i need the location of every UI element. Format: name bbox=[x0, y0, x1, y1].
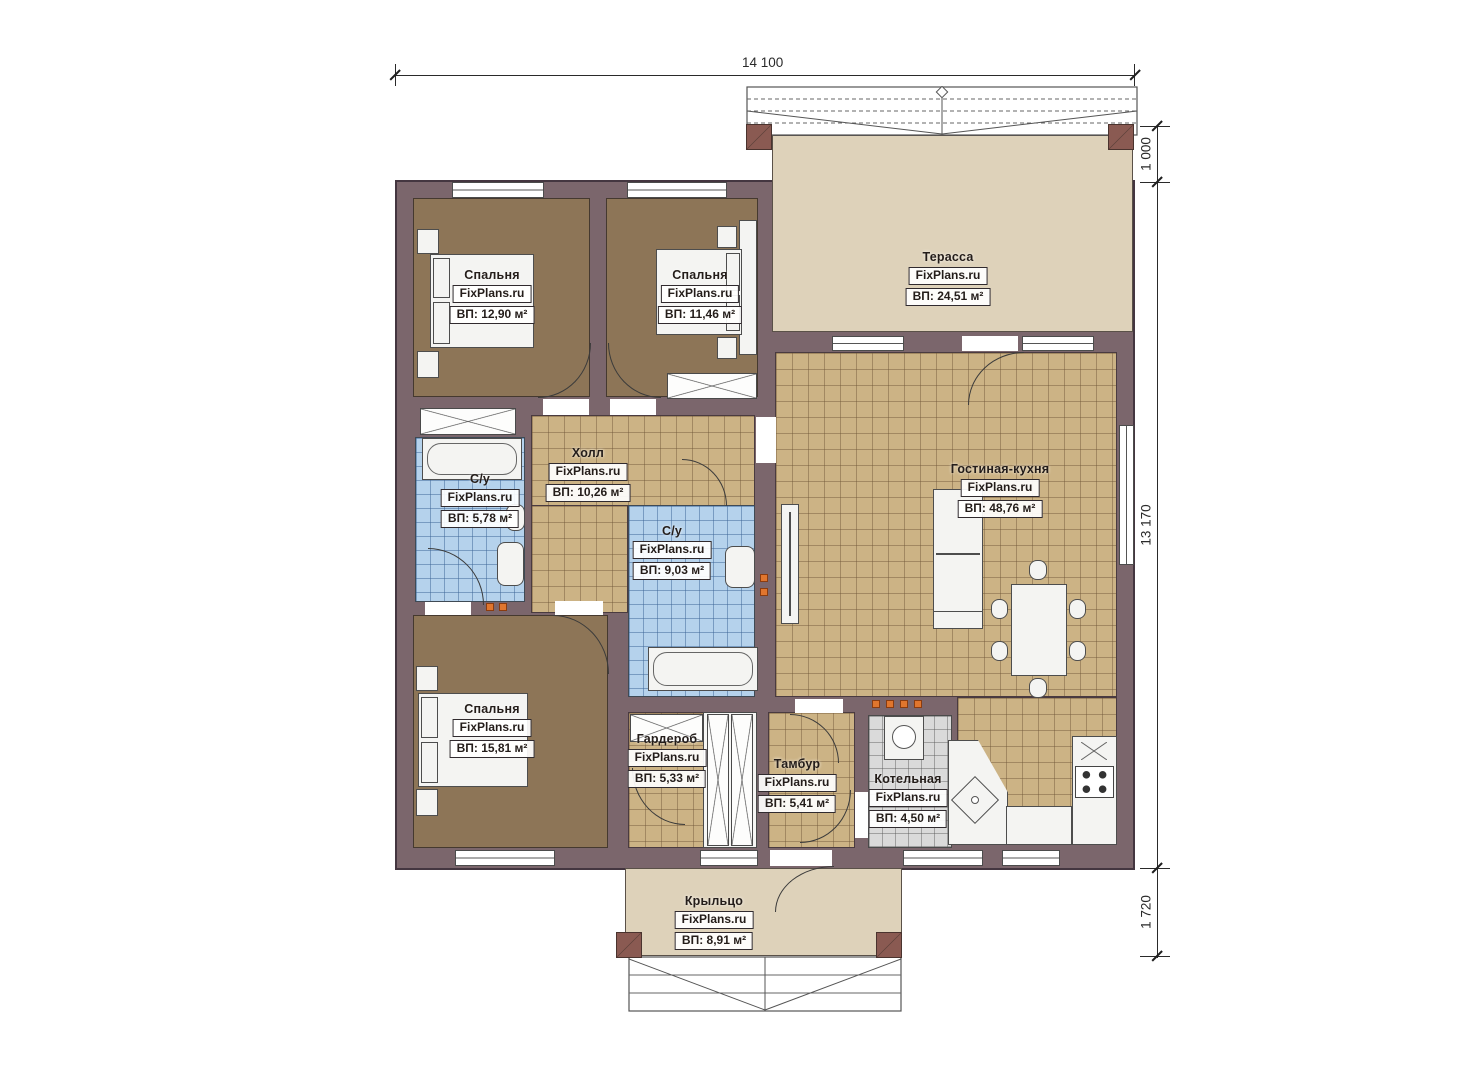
room-brand: FixPlans.ru bbox=[628, 749, 707, 767]
vent-marker bbox=[486, 603, 494, 611]
sofa-line bbox=[936, 553, 980, 555]
room-area: ВП: 11,46 м² bbox=[658, 306, 742, 324]
room-area: ВП: 5,33 м² bbox=[628, 770, 706, 788]
room-name: Спальня bbox=[658, 268, 742, 282]
room-brand: FixPlans.ru bbox=[633, 541, 712, 559]
room-brand: FixPlans.ru bbox=[961, 479, 1040, 497]
door-opening bbox=[543, 399, 589, 415]
window bbox=[832, 336, 904, 351]
room-brand: FixPlans.ru bbox=[661, 285, 740, 303]
room-label-bathroom-left: С/у FixPlans.ru ВП: 5,78 м² bbox=[441, 472, 520, 528]
room-area: ВП: 8,91 м² bbox=[675, 932, 753, 950]
floor-plan-canvas: 14 100 1 000 13 170 1 720 bbox=[0, 0, 1473, 1080]
door-opening bbox=[610, 399, 656, 415]
room-brand: FixPlans.ru bbox=[441, 489, 520, 507]
room-brand: FixPlans.ru bbox=[675, 911, 754, 929]
room-label-bedroom-top-left: Спальня FixPlans.ru ВП: 12,90 м² bbox=[450, 268, 535, 324]
kitchen-sink-mark bbox=[1081, 742, 1107, 760]
room-brand: FixPlans.ru bbox=[869, 789, 948, 807]
chair bbox=[991, 641, 1008, 661]
room-label-living-kitchen: Гостиная-кухня FixPlans.ru ВП: 48,76 м² bbox=[951, 462, 1050, 518]
door-opening bbox=[555, 601, 603, 615]
room-name: С/у bbox=[441, 472, 520, 486]
toilet bbox=[497, 542, 524, 586]
dimension-line-top bbox=[395, 75, 1135, 76]
dimension-label-right-bottom: 1 720 bbox=[1139, 895, 1154, 929]
bathtub bbox=[648, 647, 758, 691]
room-label-boiler-room: Котельная FixPlans.ru ВП: 4,50 м² bbox=[869, 772, 948, 828]
vent-marker bbox=[499, 603, 507, 611]
vent-marker bbox=[914, 700, 922, 708]
pillow bbox=[421, 742, 438, 783]
closet bbox=[667, 373, 757, 399]
window bbox=[455, 850, 555, 866]
room-brand: FixPlans.ru bbox=[453, 285, 532, 303]
dimension-line-right bbox=[1157, 126, 1158, 958]
chair bbox=[1029, 678, 1047, 698]
nightstand bbox=[416, 666, 438, 691]
room-label-hall: Холл FixPlans.ru ВП: 10,26 м² bbox=[546, 446, 631, 502]
window bbox=[627, 182, 727, 198]
door-opening bbox=[425, 602, 471, 615]
sofa-base bbox=[933, 611, 983, 629]
pillow bbox=[433, 302, 450, 344]
nightstand bbox=[717, 226, 737, 248]
dimension-label-top: 14 100 bbox=[742, 55, 783, 70]
porch-floor bbox=[625, 868, 902, 956]
porch-post bbox=[616, 932, 642, 958]
sliding-closet bbox=[731, 714, 753, 846]
pillow bbox=[433, 258, 450, 298]
room-area: ВП: 24,51 м² bbox=[906, 288, 991, 306]
room-name: Крыльцо bbox=[675, 894, 754, 908]
window bbox=[452, 182, 544, 198]
room-brand: FixPlans.ru bbox=[909, 267, 988, 285]
room-area: ВП: 12,90 м² bbox=[450, 306, 535, 324]
porch-post bbox=[876, 932, 902, 958]
room-name: Спальня bbox=[450, 268, 535, 282]
terrace-post bbox=[746, 124, 772, 150]
porch-steps bbox=[628, 956, 902, 1012]
room-label-porch: Крыльцо FixPlans.ru ВП: 8,91 м² bbox=[675, 894, 754, 950]
nightstand bbox=[417, 351, 439, 378]
room-label-bathroom-center: С/у FixPlans.ru ВП: 9,03 м² bbox=[633, 524, 712, 580]
chair bbox=[1029, 560, 1047, 580]
window bbox=[903, 850, 983, 866]
toilet bbox=[725, 546, 755, 588]
door-opening bbox=[855, 792, 868, 838]
room-name: Гардероб bbox=[628, 732, 707, 746]
door-opening bbox=[962, 336, 1018, 351]
hall-floor-lower bbox=[531, 505, 628, 613]
room-area: ВП: 15,81 м² bbox=[450, 740, 535, 758]
kitchen-counter bbox=[1006, 806, 1072, 845]
sliding-closet bbox=[707, 714, 729, 846]
dimension-label-right-top: 1 000 bbox=[1139, 137, 1154, 171]
window bbox=[1022, 336, 1094, 351]
window bbox=[1119, 425, 1134, 565]
room-brand: FixPlans.ru bbox=[549, 463, 628, 481]
vent-marker bbox=[760, 588, 768, 596]
terrace-post bbox=[1108, 124, 1134, 150]
entry-door-opening bbox=[770, 850, 832, 866]
chair bbox=[991, 599, 1008, 619]
room-name: С/у bbox=[633, 524, 712, 538]
room-brand: FixPlans.ru bbox=[453, 719, 532, 737]
vent-marker bbox=[900, 700, 908, 708]
room-area: ВП: 48,76 м² bbox=[958, 500, 1043, 518]
chair bbox=[1069, 641, 1086, 661]
room-label-wardrobe: Гардероб FixPlans.ru ВП: 5,33 м² bbox=[628, 732, 707, 788]
chair bbox=[1069, 599, 1086, 619]
room-area: ВП: 9,03 м² bbox=[633, 562, 711, 580]
room-name: Гостиная-кухня bbox=[951, 462, 1050, 476]
room-area: ВП: 5,41 м² bbox=[758, 795, 836, 813]
vent-marker bbox=[872, 700, 880, 708]
tv-stand-line bbox=[789, 512, 791, 616]
room-name: Терасса bbox=[906, 250, 991, 264]
room-brand: FixPlans.ru bbox=[758, 774, 837, 792]
room-label-bedroom-bottom: Спальня FixPlans.ru ВП: 15,81 м² bbox=[450, 702, 535, 758]
room-area: ВП: 4,50 м² bbox=[869, 810, 947, 828]
room-label-vestibule: Тамбур FixPlans.ru ВП: 5,41 м² bbox=[758, 757, 837, 813]
nightstand bbox=[416, 789, 438, 816]
room-name: Котельная bbox=[869, 772, 948, 786]
dimension-label-right-mid: 13 170 bbox=[1139, 504, 1154, 545]
nightstand bbox=[417, 229, 439, 254]
room-label-terrace: Терасса FixPlans.ru ВП: 24,51 м² bbox=[906, 250, 991, 306]
room-label-bedroom-top-middle: Спальня FixPlans.ru ВП: 11,46 м² bbox=[658, 268, 742, 324]
corner-sink-drain bbox=[971, 796, 979, 804]
boiler-dial bbox=[892, 725, 916, 749]
room-name: Спальня bbox=[450, 702, 535, 716]
room-name: Холл bbox=[546, 446, 631, 460]
nightstand bbox=[717, 337, 737, 359]
stove bbox=[1075, 766, 1114, 798]
pillow bbox=[421, 697, 438, 738]
door-opening bbox=[756, 417, 776, 463]
room-area: ВП: 10,26 м² bbox=[546, 484, 631, 502]
room-name: Тамбур bbox=[758, 757, 837, 771]
pergola-structure bbox=[746, 86, 1138, 136]
dining-table bbox=[1011, 584, 1067, 676]
door-opening bbox=[795, 699, 843, 713]
vent-marker bbox=[886, 700, 894, 708]
closet bbox=[420, 408, 516, 435]
window bbox=[1002, 850, 1060, 866]
window bbox=[700, 850, 758, 866]
vent-marker bbox=[760, 574, 768, 582]
room-area: ВП: 5,78 м² bbox=[441, 510, 519, 528]
